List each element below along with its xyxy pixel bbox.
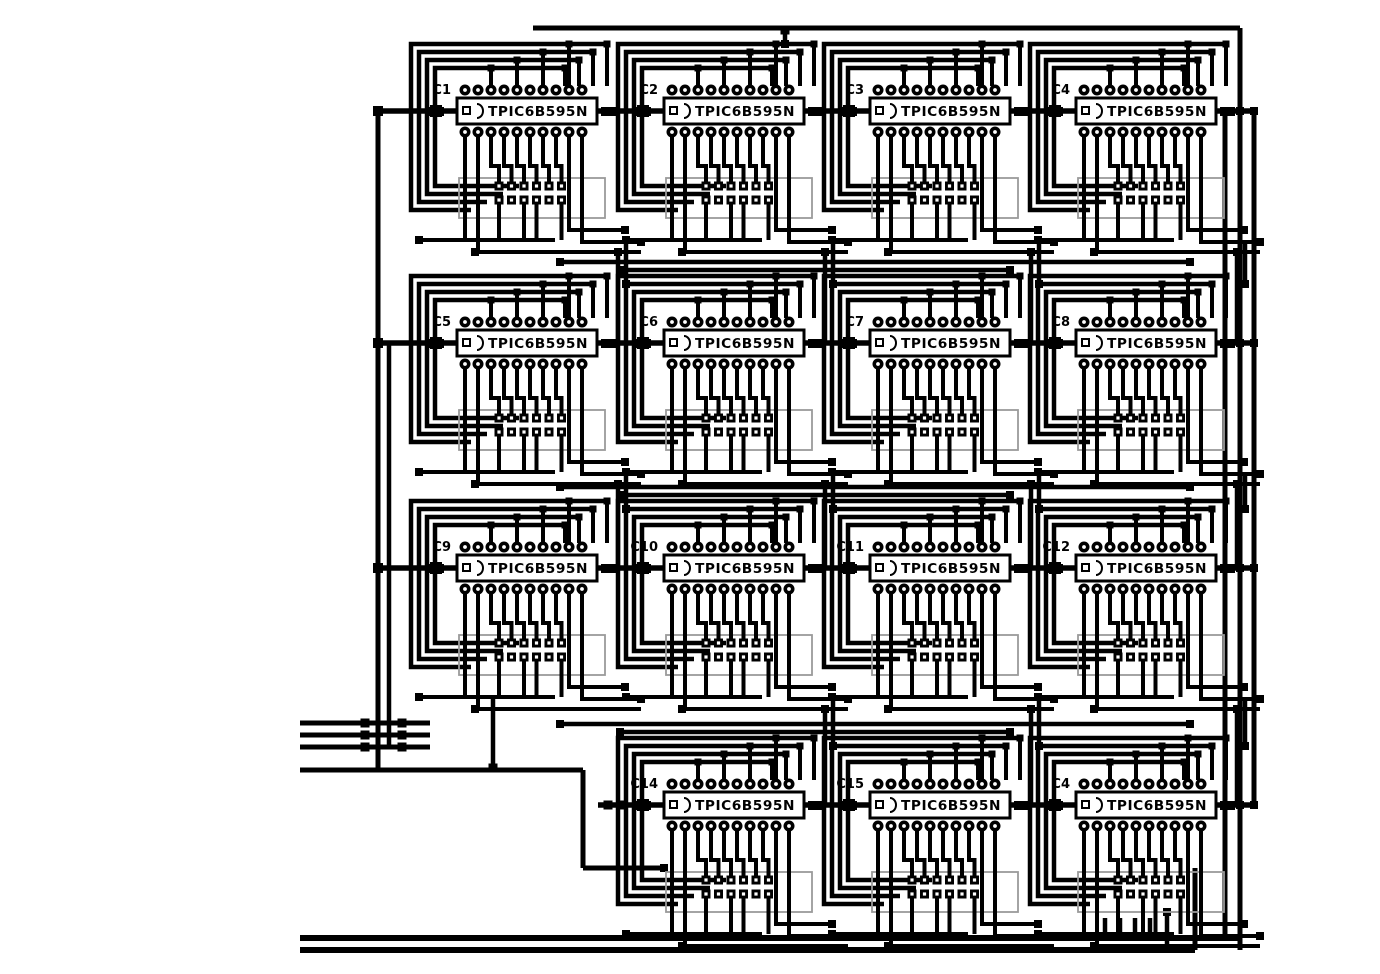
chip-ref-label: C11 <box>836 540 864 555</box>
chip-ref-label: C3 <box>845 83 864 98</box>
chip-cell-C5-4: C5TPIC6B595N <box>411 273 645 489</box>
chip-ref-label: C5 <box>432 315 451 330</box>
chip-cell-C4-3: C4TPIC6B595N <box>1030 41 1264 257</box>
chip-cell-C8-7: C8TPIC6B595N <box>1030 273 1264 489</box>
chip-cell-C9-8: C9TPIC6B595N <box>411 498 645 714</box>
chip-cell-C11-10: C11TPIC6B595N <box>824 498 1058 714</box>
chip-cell-C6-5: C6TPIC6B595N <box>618 273 852 489</box>
chip-ref-label: C9 <box>432 540 451 555</box>
chip-part-label: TPIC6B595N <box>1107 105 1207 120</box>
chip-part-label: TPIC6B595N <box>488 105 588 120</box>
chip-cell-C15-13: C15TPIC6B595N <box>824 735 1058 951</box>
chip-cell-C4-14: C4TPIC6B595N <box>1030 735 1264 951</box>
chip-ref-label: C6 <box>639 315 658 330</box>
chip-ref-label: C1 <box>432 83 451 98</box>
chip-part-label: TPIC6B595N <box>695 105 795 120</box>
chip-cell-C10-9: C10TPIC6B595N <box>618 498 852 714</box>
chip-part-label: TPIC6B595N <box>1107 337 1207 352</box>
chip-cell-C2-1: C2TPIC6B595N <box>618 41 852 257</box>
chip-ref-label: C8 <box>1051 315 1070 330</box>
chip-ref-label: C4 <box>1051 777 1070 792</box>
chip-part-label: TPIC6B595N <box>695 562 795 577</box>
chip-ref-label: C4 <box>1051 83 1070 98</box>
pcb-board: C1TPIC6B595NC2TPIC6B595NC3TPIC6B595NC4TP… <box>0 0 1380 974</box>
chip-part-label: TPIC6B595N <box>488 562 588 577</box>
chip-cell-C3-2: C3TPIC6B595N <box>824 41 1058 257</box>
chip-ref-label: C2 <box>639 83 658 98</box>
chip-part-label: TPIC6B595N <box>695 799 795 814</box>
chip-part-label: TPIC6B595N <box>901 105 1001 120</box>
chip-cell-C1-0: C1TPIC6B595N <box>411 41 645 257</box>
chip-ref-label: C7 <box>845 315 864 330</box>
chip-part-label: TPIC6B595N <box>901 799 1001 814</box>
chip-part-label: TPIC6B595N <box>901 337 1001 352</box>
chip-part-label: TPIC6B595N <box>1107 562 1207 577</box>
pcb-layout-canvas: C1TPIC6B595NC2TPIC6B595NC3TPIC6B595NC4TP… <box>0 0 1380 974</box>
chip-part-label: TPIC6B595N <box>1107 799 1207 814</box>
chip-ref-label: C14 <box>630 777 658 792</box>
chip-ref-label: C10 <box>630 540 658 555</box>
chip-ref-label: C15 <box>836 777 864 792</box>
chip-part-label: TPIC6B595N <box>695 337 795 352</box>
chip-cell-C7-6: C7TPIC6B595N <box>824 273 1058 489</box>
chip-part-label: TPIC6B595N <box>901 562 1001 577</box>
chip-cell-C14-12: C14TPIC6B595N <box>618 735 852 951</box>
chip-ref-label: C12 <box>1042 540 1070 555</box>
chip-cell-C12-11: C12TPIC6B595N <box>1030 498 1264 714</box>
chip-part-label: TPIC6B595N <box>488 337 588 352</box>
